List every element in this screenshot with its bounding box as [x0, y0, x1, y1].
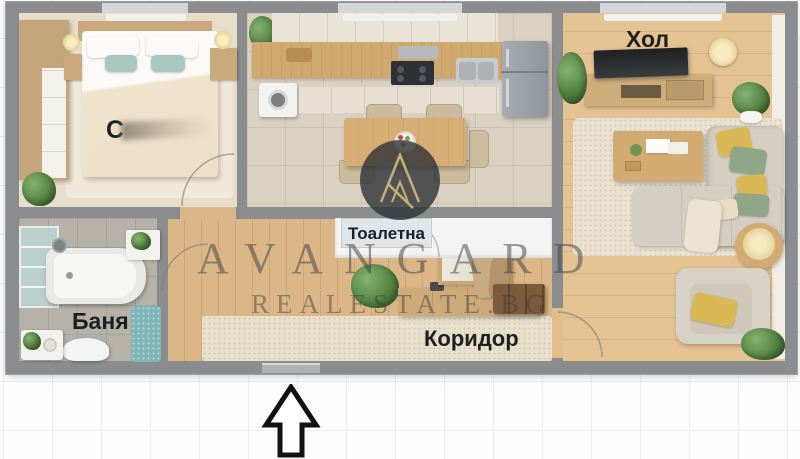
living-room-label: Хол — [626, 28, 669, 51]
direction-arrow-icon — [260, 384, 322, 458]
watermark-logo — [357, 138, 443, 224]
watermark-site: REALESTATE.BG — [251, 291, 552, 318]
corridor-label: Коридор — [424, 328, 519, 350]
bathroom-label: Баня — [72, 310, 129, 333]
watermark-brand: AVANGARD — [197, 237, 605, 281]
floor-plan-image: С — [0, 0, 800, 459]
